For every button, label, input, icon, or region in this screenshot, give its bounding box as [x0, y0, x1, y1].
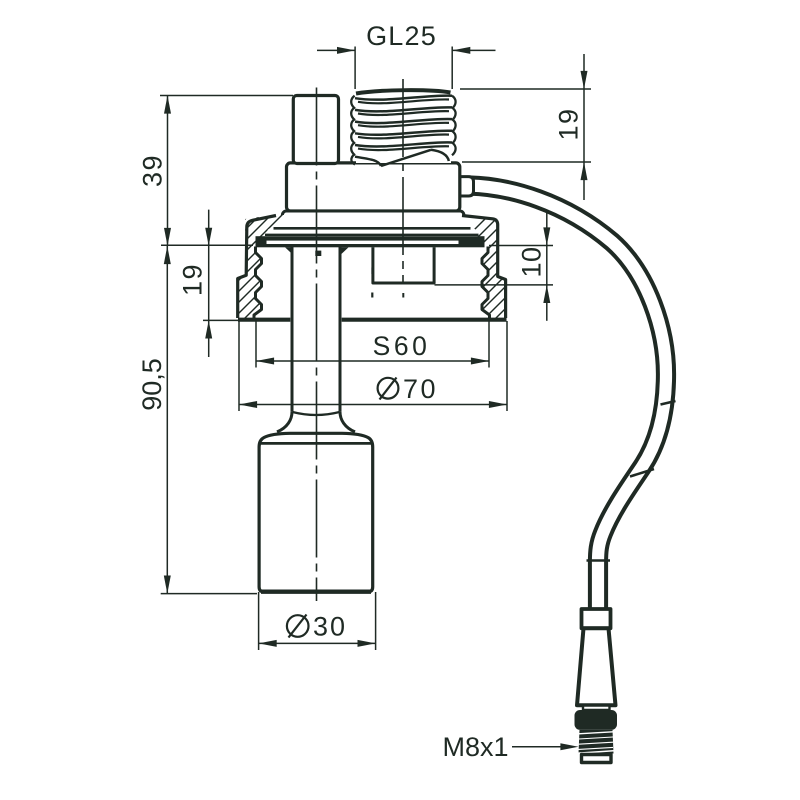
svg-text:90,5: 90,5	[137, 358, 167, 411]
svg-text:19: 19	[178, 263, 208, 296]
svg-text:30: 30	[313, 612, 347, 642]
svg-text:GL25: GL25	[366, 21, 437, 51]
svg-text:39: 39	[138, 154, 168, 187]
svg-text:10: 10	[517, 246, 547, 277]
svg-text:S60: S60	[373, 331, 431, 361]
svg-text:70: 70	[403, 374, 438, 404]
svg-text:M8x1: M8x1	[443, 732, 509, 762]
svg-text:19: 19	[554, 107, 584, 140]
